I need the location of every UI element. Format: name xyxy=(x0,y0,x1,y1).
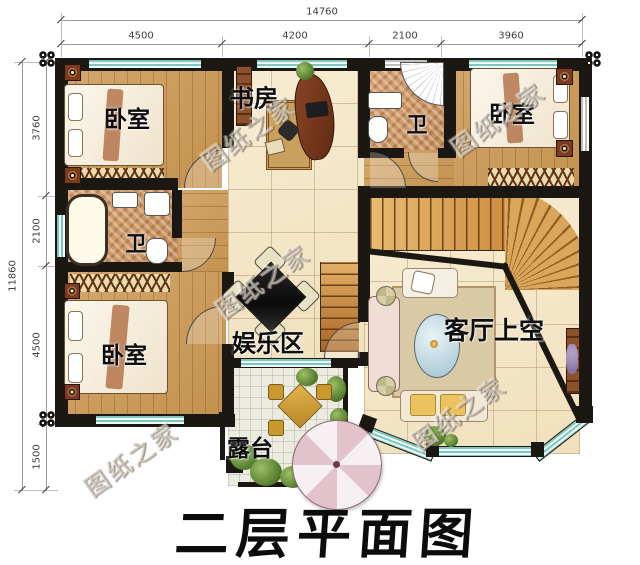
dim-guide xyxy=(222,36,223,57)
side-stool xyxy=(376,376,396,396)
dim-guide xyxy=(441,36,442,57)
wall-bathleft-right-a xyxy=(172,190,182,238)
lavender-plant xyxy=(566,344,578,374)
terrace-wall-left-a xyxy=(226,366,231,416)
pillow xyxy=(68,311,83,341)
parasol-pole xyxy=(333,461,340,468)
terrace-chair xyxy=(316,384,332,400)
nightstand-lamp xyxy=(556,68,573,85)
dim-guide xyxy=(369,36,370,57)
nightstand-lamp xyxy=(64,64,81,81)
pillow xyxy=(68,93,83,121)
dim-top-seg-1: 4500 xyxy=(128,31,153,42)
sofa-pillow xyxy=(410,270,436,295)
vanity xyxy=(144,192,170,216)
label-bath-left: 卫 xyxy=(126,228,147,258)
sink xyxy=(112,192,138,208)
label-living-void: 客厅上空 xyxy=(444,311,544,347)
nightstand-lamp xyxy=(64,167,81,184)
window-bath-left xyxy=(56,214,66,258)
dim-left-seg-1: 3760 xyxy=(24,123,49,134)
label-bedroom-tl: 卧室 xyxy=(104,100,150,134)
dim-line-top-segments xyxy=(61,44,582,45)
label-bath-top: 卫 xyxy=(407,109,428,139)
bay-wall-post xyxy=(531,442,544,457)
staircase-straight-flight xyxy=(370,198,505,251)
table-decor xyxy=(430,340,438,348)
side-stool xyxy=(376,286,396,306)
nightstand-lamp xyxy=(556,140,573,157)
corner-ornament-icon xyxy=(38,50,56,68)
label-entertainment: 娱乐区 xyxy=(232,324,304,359)
terrace-chair xyxy=(268,384,284,400)
plan-title: 二层平面图 xyxy=(173,490,484,565)
dim-top-seg-3: 2100 xyxy=(392,31,417,42)
sink xyxy=(368,92,402,109)
computer-monitor xyxy=(305,101,329,119)
dim-top-seg-2: 4200 xyxy=(282,31,307,42)
bay-wall-post xyxy=(576,406,593,423)
floor-plan-canvas: 14760 4500 4200 2100 3960 11860 3760 210… xyxy=(0,0,640,565)
wall-terrace-top-a xyxy=(222,358,240,368)
dim-top-seg-4: 3960 xyxy=(498,31,523,42)
pillow xyxy=(68,129,83,157)
dim-top-total: 14760 xyxy=(306,7,338,18)
dim-left-seg-3: 4500 xyxy=(24,340,49,351)
toilet xyxy=(368,116,388,143)
rug-bedroom-tr xyxy=(488,168,574,186)
corner-ornament-icon xyxy=(584,50,602,68)
pillow xyxy=(68,353,83,383)
dim-left-total: 11860 xyxy=(0,271,29,282)
window-terrace xyxy=(240,358,332,368)
dim-left-seg-2: 2100 xyxy=(24,226,49,237)
corner-ornament-icon xyxy=(38,410,56,428)
window-bedroom-tl xyxy=(88,59,202,69)
rug-bedroom-bl xyxy=(70,274,170,292)
bay-window-center xyxy=(434,446,540,457)
label-bedroom-bl: 卧室 xyxy=(101,336,147,370)
window-right-wall xyxy=(580,96,590,152)
nightstand-lamp xyxy=(64,384,80,400)
nightstand-lamp xyxy=(64,283,80,299)
bathtub xyxy=(66,194,108,266)
toilet xyxy=(146,238,168,264)
terrace-wall-left-b xyxy=(220,424,225,460)
label-terrace: 露台 xyxy=(227,429,273,463)
dim-line-top-total xyxy=(61,20,582,21)
study-plant xyxy=(296,62,314,80)
pillow xyxy=(553,111,568,139)
dim-left-seg-4: 1500 xyxy=(24,452,49,463)
